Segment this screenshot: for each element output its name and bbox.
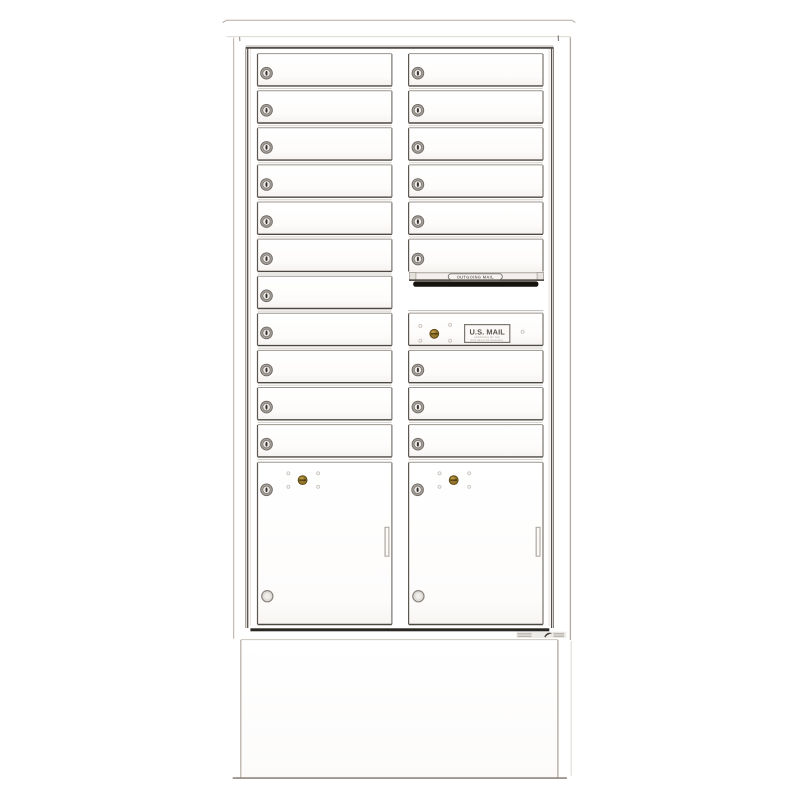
svg-text:POSTMASTER GENERAL: POSTMASTER GENERAL (471, 339, 504, 342)
svg-text:OUTGOING MAIL: OUTGOING MAIL (457, 274, 494, 279)
